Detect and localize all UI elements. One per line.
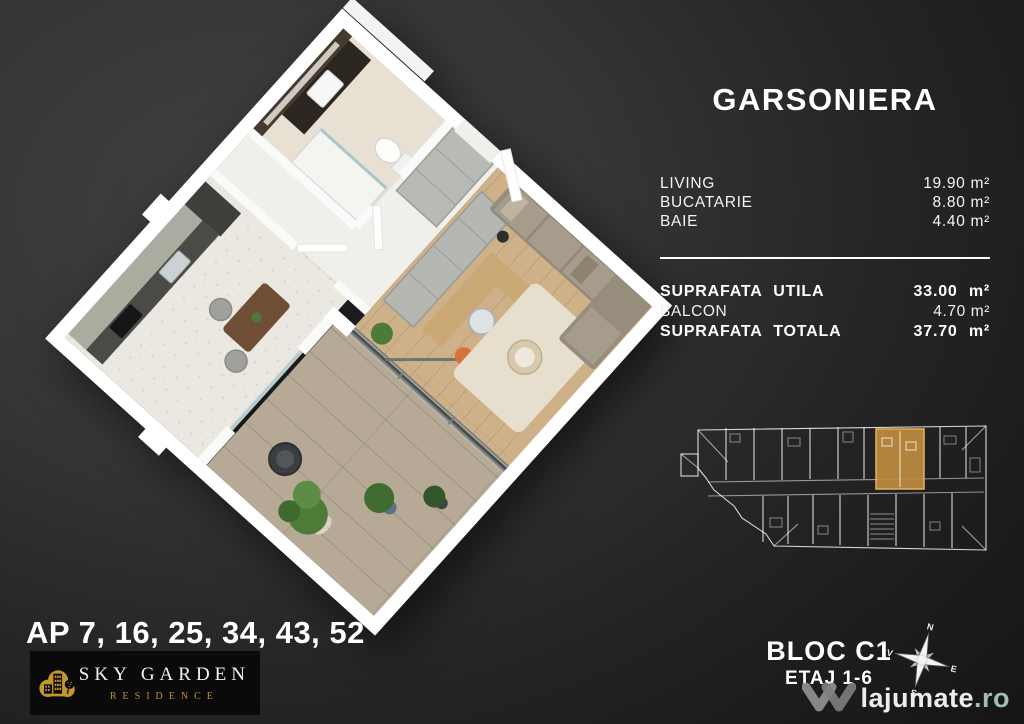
- info-panel: GARSONIERA LIVING 19.90 m² BUCATARIE 8.8…: [660, 82, 990, 342]
- area-row-living: LIVING 19.90 m²: [660, 174, 990, 193]
- watermark-site: lajumate: [860, 683, 974, 713]
- brand-name: SKY GARDEN: [79, 664, 250, 686]
- watermark-tld: .ro: [974, 683, 1010, 713]
- area-label: LIVING: [660, 174, 715, 193]
- building-floorplate-diagram: [678, 418, 998, 580]
- brand-subtitle: RESIDENCE: [79, 691, 250, 702]
- interior-wall-hints: [730, 432, 980, 534]
- total-label: BALCON: [660, 302, 727, 322]
- area-label: BAIE: [660, 212, 698, 231]
- sky-garden-logo-icon: [36, 655, 79, 711]
- total-row-totala: SUPRAFATA TOTALA 37.70 m²: [660, 322, 990, 342]
- page-title: GARSONIERA: [660, 82, 990, 118]
- apartment-numbers: AP 7, 16, 25, 34, 43, 52: [26, 615, 365, 651]
- total-label: SUPRAFATA TOTALA: [660, 322, 841, 342]
- area-value: 4.40 m²: [933, 212, 990, 231]
- total-value: 37.70 m²: [914, 322, 990, 342]
- corridor-line: [708, 478, 984, 482]
- lajumate-logo-icon: [802, 680, 856, 716]
- bathroom-door-leaf: [373, 206, 383, 250]
- kitchen-door-leaf: [297, 244, 347, 252]
- watermark: lajumate.ro: [802, 680, 1010, 716]
- block-name: BLOC C1: [754, 636, 904, 667]
- stairwell-hatch: [870, 514, 894, 539]
- building-notch: [681, 454, 698, 476]
- area-row-baie: BAIE 4.40 m²: [660, 212, 990, 231]
- area-rows: LIVING 19.90 m² BUCATARIE 8.80 m² BAIE 4…: [660, 174, 990, 231]
- area-value: 19.90 m²: [923, 174, 990, 193]
- area-value: 8.80 m²: [933, 193, 990, 212]
- total-label: SUPRAFATA UTILA: [660, 282, 824, 302]
- brand-logo: SKY GARDEN RESIDENCE: [30, 651, 260, 715]
- area-label: BUCATARIE: [660, 193, 753, 212]
- corridor-line: [708, 492, 984, 496]
- total-value: 33.00 m²: [914, 282, 990, 302]
- divider-line: [660, 257, 990, 259]
- total-row-utila: SUPRAFATA UTILA 33.00 m²: [660, 282, 990, 302]
- compass-west-label: V: [886, 647, 894, 658]
- area-row-bucatarie: BUCATARIE 8.80 m²: [660, 193, 990, 212]
- brand-text: SKY GARDEN RESIDENCE: [79, 664, 250, 702]
- compass-north-label: N: [926, 622, 935, 633]
- total-rows: SUPRAFATA UTILA 33.00 m² BALCON 4.70 m² …: [660, 282, 990, 342]
- compass-east-label: E: [950, 663, 958, 674]
- building-outline: [698, 426, 986, 550]
- total-value: 4.70 m²: [933, 302, 990, 322]
- total-row-balcon: BALCON 4.70 m²: [660, 302, 990, 322]
